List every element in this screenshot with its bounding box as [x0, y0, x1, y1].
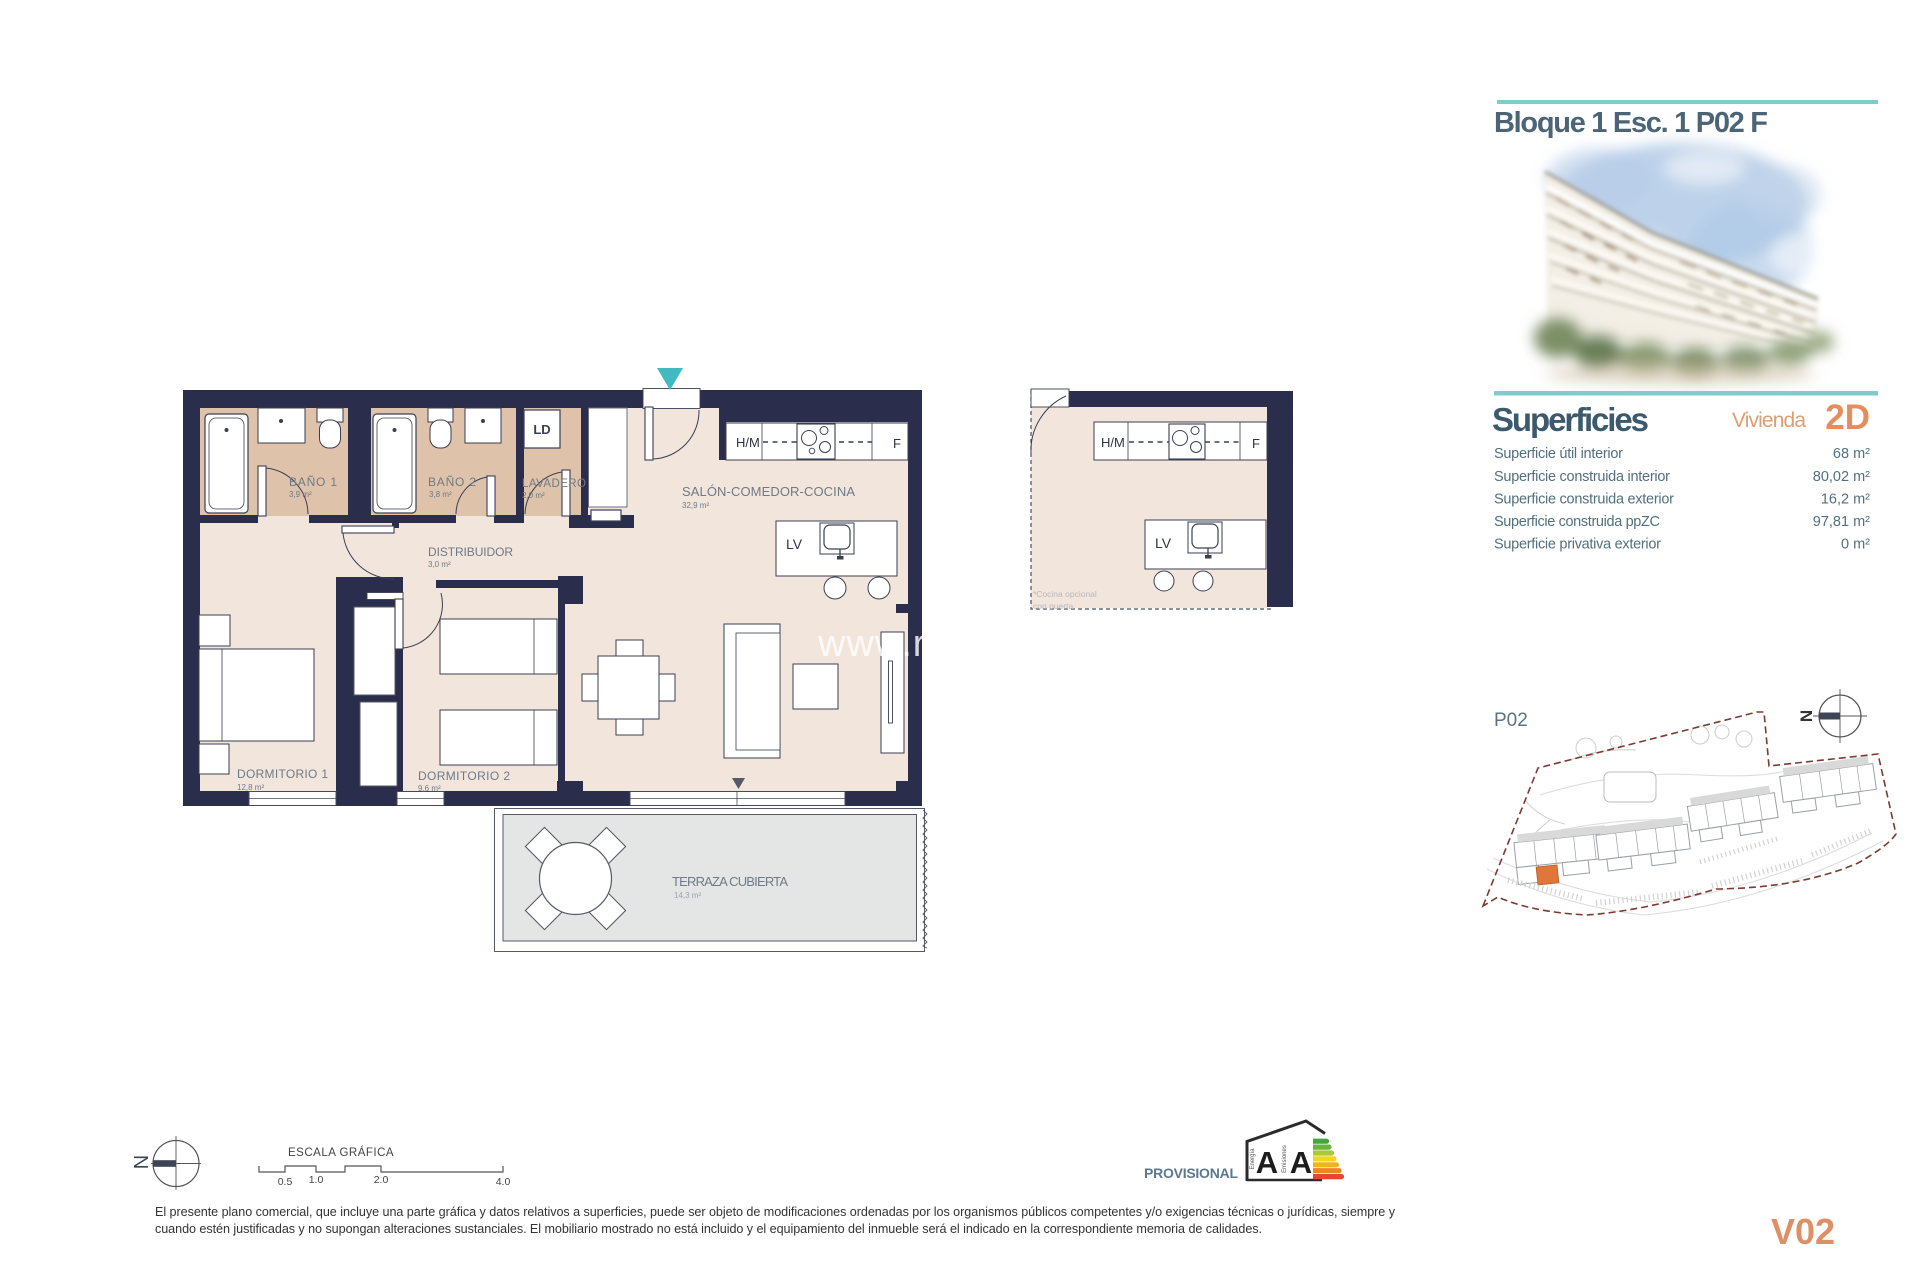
svg-text:9,6 m²: 9,6 m²	[418, 784, 441, 793]
svg-text:DORMITORIO 2: DORMITORIO 2	[418, 769, 510, 783]
svg-text:N: N	[131, 1155, 153, 1169]
svg-text:El presente plano comercial, q: El presente plano comercial, que incluye…	[155, 1205, 1396, 1219]
svg-text:F: F	[893, 436, 901, 451]
svg-text:A: A	[1256, 1145, 1278, 1180]
svg-text:BAÑO 2: BAÑO 2	[428, 475, 476, 489]
svg-text:www.ray: www.ray	[817, 623, 969, 665]
svg-text:Superficie privativa exterior: Superficie privativa exterior	[1494, 537, 1661, 553]
svg-text:0 m²: 0 m²	[1841, 537, 1870, 553]
svg-text:16,2 m²: 16,2 m²	[1821, 492, 1870, 508]
svg-text:DORMITORIO 1: DORMITORIO 1	[237, 767, 328, 781]
svg-text:2.0: 2.0	[374, 1174, 389, 1186]
svg-text:cuando estén justificadas y no: cuando estén justificadas y no supongan …	[155, 1222, 1262, 1236]
svg-text:ESCALA GRÁFICA: ESCALA GRÁFICA	[288, 1146, 394, 1159]
svg-text:Superficie construida exterior: Superficie construida exterior	[1494, 492, 1674, 508]
svg-text:LAVADERO: LAVADERO	[522, 478, 586, 490]
svg-text:2,0 m²: 2,0 m²	[522, 491, 545, 500]
svg-text:0.5: 0.5	[278, 1176, 293, 1188]
svg-text:*Cocina opcional: *Cocina opcional	[1033, 589, 1097, 599]
svg-text:P02: P02	[1494, 710, 1528, 731]
svg-text:Superficie construida ppZC: Superficie construida ppZC	[1494, 514, 1660, 530]
svg-text:80,02 m²: 80,02 m²	[1813, 469, 1870, 485]
svg-text:68 m²: 68 m²	[1833, 446, 1870, 462]
svg-text:1.0: 1.0	[309, 1174, 324, 1186]
svg-text:2D: 2D	[1825, 398, 1870, 437]
svg-text:H/M: H/M	[1101, 435, 1125, 450]
svg-text:3,8 m²: 3,8 m²	[429, 490, 452, 499]
svg-text:BAÑO 1: BAÑO 1	[289, 475, 337, 489]
svg-text:V02: V02	[1771, 1211, 1835, 1252]
svg-text:LV: LV	[1155, 535, 1172, 551]
svg-text:Emisiones: Emisiones	[1282, 1145, 1288, 1173]
svg-text:Bloque 1 Esc. 1 P02 F: Bloque 1 Esc. 1 P02 F	[1494, 107, 1768, 139]
svg-text:3,9 m²: 3,9 m²	[289, 490, 312, 499]
svg-text:LD: LD	[533, 422, 550, 437]
svg-text:DISTRIBUIDOR: DISTRIBUIDOR	[428, 545, 513, 559]
svg-text:F: F	[1252, 436, 1260, 451]
svg-text:97,81 m²: 97,81 m²	[1813, 514, 1870, 530]
svg-text:TERRAZA CUBIERTA: TERRAZA CUBIERTA	[672, 874, 788, 889]
svg-text:Superficie construida interior: Superficie construida interior	[1494, 469, 1670, 485]
svg-text:con puerta: con puerta	[1033, 601, 1073, 611]
svg-text:14,3 m²: 14,3 m²	[674, 891, 701, 900]
svg-text:4.0: 4.0	[496, 1176, 511, 1188]
svg-text:Superficies: Superficies	[1492, 401, 1649, 438]
svg-text:Superficie útil interior: Superficie útil interior	[1494, 446, 1623, 462]
svg-text:3,0 m²: 3,0 m²	[428, 560, 451, 569]
svg-text:A: A	[1290, 1145, 1312, 1180]
svg-text:Vivienda: Vivienda	[1732, 409, 1806, 432]
svg-text:LV: LV	[786, 536, 803, 552]
svg-text:12,8 m²: 12,8 m²	[237, 783, 264, 792]
svg-text:SALÓN-COMEDOR-COCINA: SALÓN-COMEDOR-COCINA	[682, 484, 855, 499]
svg-text:N: N	[1797, 710, 1816, 722]
svg-text:PROVISIONAL: PROVISIONAL	[1144, 1165, 1238, 1181]
svg-text:H/M: H/M	[736, 435, 760, 450]
svg-text:32,9 m²: 32,9 m²	[682, 501, 709, 510]
